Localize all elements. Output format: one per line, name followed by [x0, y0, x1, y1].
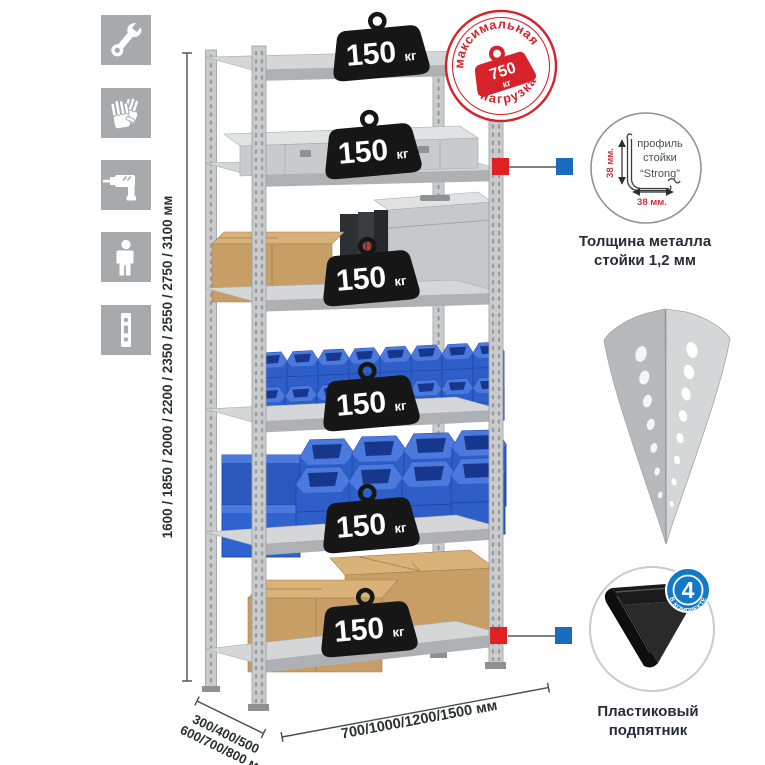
profile-caption-line1: Толщина металла — [579, 233, 712, 250]
foot-caption-line2: подпятник — [609, 722, 688, 739]
rack-post-icon — [101, 305, 151, 355]
shelf-load-value: 150 — [337, 134, 390, 171]
profile-label-line1: профиль — [637, 138, 683, 150]
shelf-load-unit: кг — [394, 273, 408, 289]
person-icon — [101, 232, 151, 282]
connector-blue-square — [555, 627, 572, 644]
shelf-load-value: 150 — [335, 508, 388, 545]
height-dimension — [182, 53, 192, 681]
callout-connector-bottom — [490, 627, 572, 644]
infographic-scene: 1600 / 1850 / 2000 / 2200 / 2350 / 2550 … — [0, 0, 765, 765]
angle-post-illustration — [604, 309, 730, 544]
profile-label-line2: стойки — [643, 152, 677, 164]
shelf-load-unit: кг — [394, 520, 408, 536]
shelving-infographic: 1600 / 1850 / 2000 / 2200 / 2350 / 2550 … — [0, 0, 765, 765]
connector-blue-square — [556, 158, 573, 175]
sidebar-icon-tiles — [101, 15, 151, 355]
width-dimension-label: 700/1000/1200/1500 мм — [340, 698, 499, 743]
height-dimension-label: 1600 / 1850 / 2000 / 2200 / 2350 / 2550 … — [160, 196, 175, 539]
profile-label-line3: “Strong” — [640, 168, 680, 180]
shelf-load-unit: кг — [404, 48, 418, 64]
shelf-load-unit: кг — [396, 146, 410, 162]
profile-dim-vertical: 38 мм. — [605, 148, 616, 178]
connector-red-square — [490, 627, 507, 644]
shelf-load-value: 150 — [335, 386, 388, 423]
badge-value: 4 — [682, 577, 695, 603]
shelf-load-unit: кг — [392, 624, 406, 640]
foot-caption-line1: Пластиковый — [597, 703, 698, 720]
shelf-load-value: 150 — [345, 36, 398, 73]
wrench-icon — [101, 15, 151, 65]
callout-connector-top — [492, 158, 573, 175]
profile-dim-horizontal: 38 мм. — [637, 197, 667, 208]
weight-icon: 150 кг — [321, 108, 423, 180]
profile-caption-line2: стойки 1,2 мм — [594, 252, 696, 269]
max-load-stamp: максимальная нагрузка 750 кг — [432, 0, 571, 135]
shelf-load-unit: кг — [394, 398, 408, 414]
drill-icon — [101, 160, 151, 210]
profile-callout: 38 мм. 38 мм. профиль стойки “Strong” — [591, 113, 701, 223]
shelf-load-value: 150 — [333, 612, 386, 649]
work-gloves-icon — [101, 88, 151, 138]
foot-callout: 4 в комплекте — [590, 567, 714, 691]
connector-red-square — [492, 158, 509, 175]
weight-icon: 150 кг — [329, 10, 431, 82]
shelf-load-value: 150 — [335, 261, 388, 298]
